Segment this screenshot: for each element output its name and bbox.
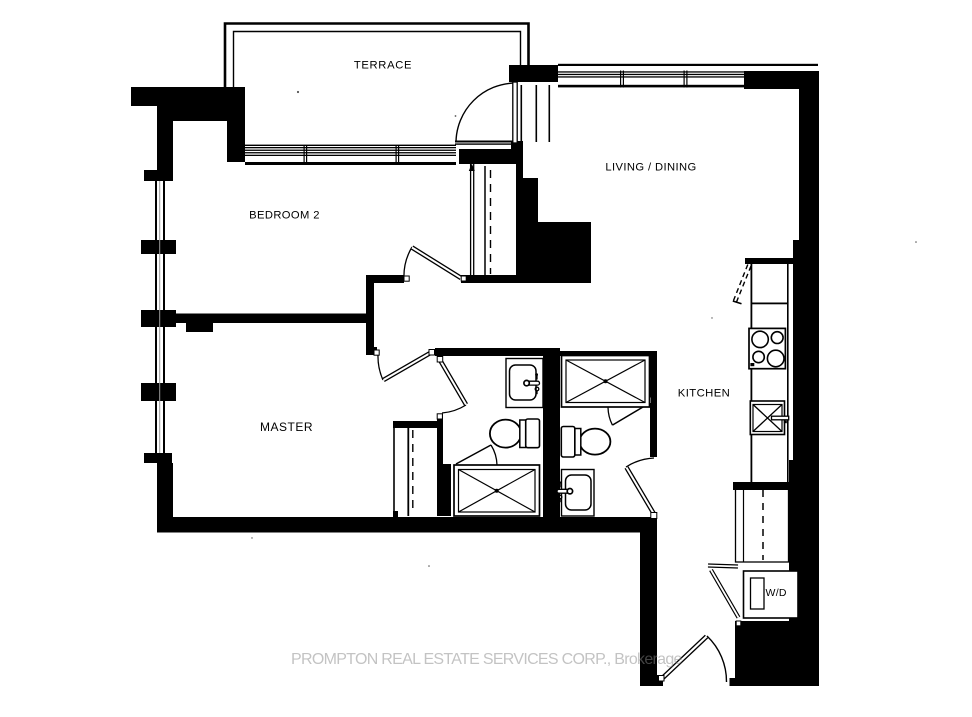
svg-text:TERRACE: TERRACE <box>354 60 412 72</box>
svg-text:LIVING / DINING: LIVING / DINING <box>605 162 696 174</box>
svg-text:KITCHEN: KITCHEN <box>678 388 730 400</box>
svg-text:BEDROOM 2: BEDROOM 2 <box>249 210 320 222</box>
svg-text:MASTER: MASTER <box>260 420 313 434</box>
svg-text:PROMPTON REAL ESTATE SERVICES: PROMPTON REAL ESTATE SERVICES CORP., Bro… <box>291 651 683 668</box>
svg-text:W/D: W/D <box>766 587 787 599</box>
